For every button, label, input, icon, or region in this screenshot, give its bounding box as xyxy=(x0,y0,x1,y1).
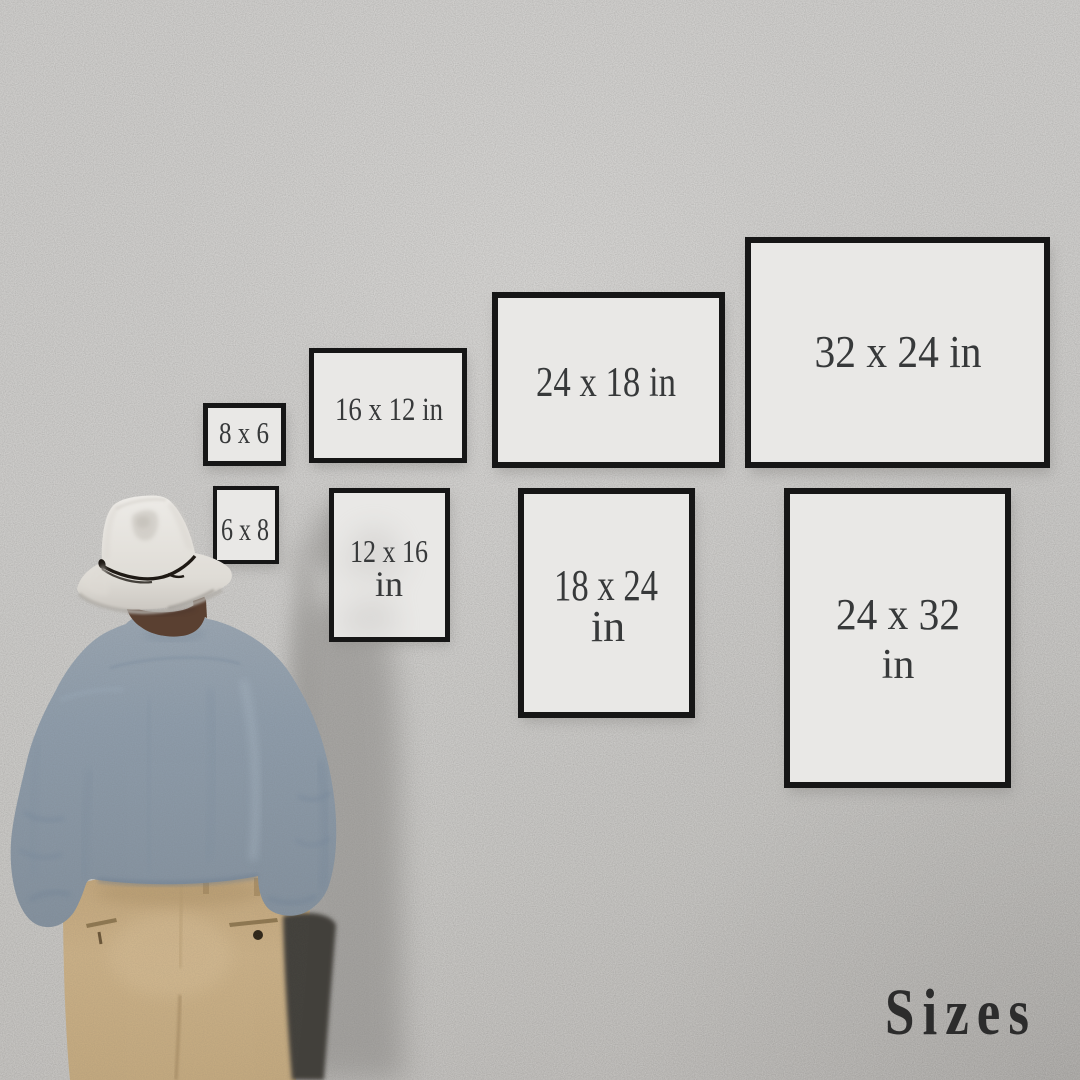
svg-text:Sizes: Sizes xyxy=(885,976,1037,1049)
svg-text:6 x 8: 6 x 8 xyxy=(221,511,269,547)
svg-text:16 x 12 in: 16 x 12 in xyxy=(335,392,443,428)
svg-text:24 x 32: 24 x 32 xyxy=(836,590,960,639)
svg-text:in: in xyxy=(375,564,403,604)
svg-text:in: in xyxy=(591,602,625,651)
svg-text:24 x 18 in: 24 x 18 in xyxy=(536,360,676,406)
svg-text:8 x 6: 8 x 6 xyxy=(219,415,269,450)
svg-text:in: in xyxy=(882,642,915,688)
svg-text:32 x 24 in: 32 x 24 in xyxy=(815,326,982,377)
